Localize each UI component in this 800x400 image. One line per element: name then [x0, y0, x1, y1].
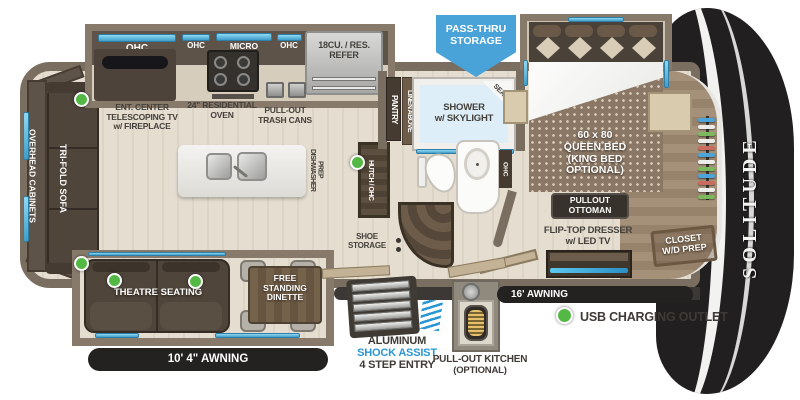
brand-logo: SOLITUDE: [739, 117, 769, 297]
sink-icon: [237, 152, 267, 181]
refrigerator-label: 18CU. / RES. REFER: [306, 40, 382, 60]
usb-outlet-dot: [107, 273, 122, 288]
tv-icon: [102, 56, 168, 69]
rv-floor-plan: OVERHEAD CABINETS TRI-FOLD SOFA OHC OHC …: [0, 0, 800, 400]
window-strip: [664, 60, 669, 88]
knob-dot: [396, 238, 401, 243]
drain-dot: [476, 163, 479, 166]
burner-icon: [237, 56, 250, 69]
knob-dot: [396, 247, 401, 252]
clothes-hanger: [698, 181, 715, 185]
window-strip: [95, 333, 139, 338]
oven-label: 24" RESIDENTIAL OVEN: [185, 101, 259, 120]
clothes-hanger: [698, 195, 715, 199]
dresser-top: [550, 253, 628, 261]
awning-right: 16' AWNING: [497, 286, 693, 303]
nightstand: [648, 92, 692, 132]
usb-legend-label: USB CHARGING OUTLET: [580, 310, 740, 324]
ohc-right-label: OHC: [272, 42, 306, 51]
usb-outlet-dot: [74, 256, 89, 271]
trash-label: PULL-OUT TRASH CANS: [255, 106, 315, 125]
shoe-storage-label: SHOE STORAGE: [338, 233, 396, 251]
usb-outlet-dot: [350, 155, 365, 170]
vent-circle-icon: [462, 283, 480, 301]
theatre-cushion: [160, 302, 222, 330]
clothes-hanger: [698, 167, 715, 171]
tri-fold-sofa-label: TRI-FOLD SOFA: [58, 92, 84, 264]
burner-icon: [237, 73, 250, 86]
usb-outlet-dot: [74, 92, 89, 107]
theatre-headrest: [92, 262, 150, 272]
ottoman-label: PULLOUT OTTOMAN: [551, 196, 629, 215]
nightstand: [503, 90, 528, 124]
sink-icon: [206, 153, 232, 180]
entry-label-aluminum: ALUMINUM: [336, 335, 458, 347]
ent-center-label: ENT. CENTER TELESCOPING TV w/ FIREPLACE: [103, 103, 181, 132]
clothes-hanger: [698, 139, 715, 143]
led-strip: [550, 268, 628, 273]
theatre-headrest: [162, 262, 220, 272]
clothes-hanger: [698, 132, 715, 136]
hutch-label: HUTCH / OHC: [366, 145, 382, 215]
bath-ohc-label: OHC: [501, 152, 510, 186]
entry-steps-icon: [346, 276, 420, 339]
window-strip: [215, 333, 300, 338]
clothes-hanger: [698, 153, 715, 157]
pillow-icon: [629, 25, 657, 37]
trash-can-icon: [266, 82, 284, 98]
shower-label: SHOWER w/ SKYLIGHT: [418, 103, 510, 124]
burner-icon: [214, 73, 227, 86]
theatre-label: THEATRE SEATING: [88, 288, 228, 299]
step: [354, 320, 412, 332]
burner-icon: [214, 56, 227, 69]
stove-icon: [207, 50, 259, 92]
oven-drawer: [212, 94, 254, 99]
pull-out-kitchen-optional: (OPTIONAL): [428, 366, 532, 377]
clothes-hanger: [698, 174, 715, 178]
dishwasher-prep-label: DISHWASHER PREP: [308, 134, 330, 206]
pull-out-kitchen-label: PULL-OUT KITCHEN: [428, 354, 532, 365]
grill-grate: [468, 310, 484, 336]
pass-thru-label: PASS-THRU STORAGE: [436, 24, 516, 48]
dinette-label: FREE STANDING DINETTE: [250, 274, 320, 303]
clothes-hanger: [698, 118, 715, 122]
cabinet-glass: [277, 34, 302, 41]
queen-bed-label: 60 x 80 QUEEN BED (KING BED OPTIONAL): [535, 130, 655, 177]
fridge-handle: [312, 86, 376, 90]
pillow-icon: [565, 25, 593, 37]
dresser-label: FLIP-TOP DRESSER w/ LED TV: [536, 226, 640, 247]
clothes-hanger: [698, 146, 715, 150]
overhead-cabinets-label: OVERHEAD CABINETS: [27, 80, 47, 272]
cabinet-glass: [216, 33, 272, 41]
usb-legend-dot: [556, 307, 573, 324]
pillow-icon: [597, 25, 625, 37]
trash-can-icon: [288, 82, 306, 98]
cabinet-glass: [98, 34, 176, 42]
cabinet-glass: [182, 34, 210, 41]
usb-outlet-dot: [188, 274, 203, 289]
clothes-hanger: [698, 160, 715, 164]
shock-coil-icon: [419, 299, 443, 331]
fireplace-icon: [112, 76, 158, 94]
fridge-handle: [312, 77, 376, 81]
pantry-label: PANTRY: [389, 79, 399, 139]
clothes-hanger: [698, 125, 715, 129]
theatre-cushion: [90, 302, 152, 330]
window-strip: [523, 60, 528, 86]
pillow-icon: [533, 25, 561, 37]
window-strip: [88, 252, 226, 256]
closet-clothes: [698, 118, 715, 202]
clothes-hanger: [698, 188, 715, 192]
awning-left: 10' 4" AWNING: [88, 348, 328, 371]
